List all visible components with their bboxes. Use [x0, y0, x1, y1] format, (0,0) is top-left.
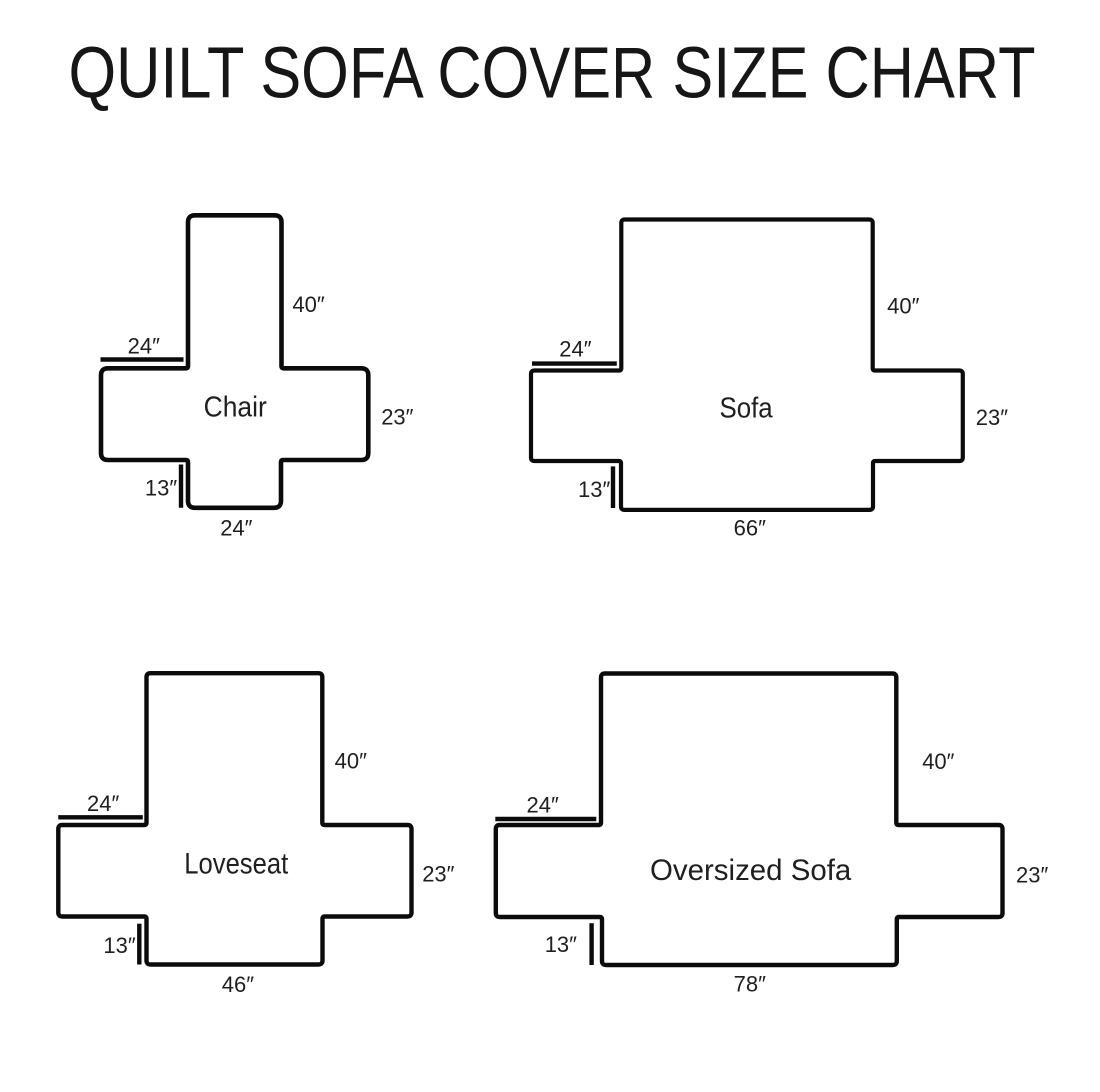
svg-text:Oversized Sofa: Oversized Sofa	[650, 854, 852, 887]
svg-text:40″: 40″	[335, 749, 367, 774]
svg-text:QUILT SOFA COVER SIZE CHART: QUILT SOFA COVER SIZE CHART	[69, 34, 1036, 114]
svg-text:78″: 78″	[734, 972, 766, 997]
svg-text:23″: 23″	[976, 405, 1008, 430]
svg-text:Loveseat: Loveseat	[184, 847, 288, 880]
svg-text:23″: 23″	[422, 862, 454, 887]
svg-text:66″: 66″	[734, 516, 766, 541]
svg-text:46″: 46″	[222, 972, 254, 997]
svg-text:23″: 23″	[381, 404, 413, 429]
svg-text:24″: 24″	[527, 793, 559, 818]
svg-text:24″: 24″	[87, 791, 119, 816]
svg-text:40″: 40″	[922, 749, 954, 774]
svg-text:24″: 24″	[128, 334, 160, 359]
svg-text:13″: 13″	[578, 477, 610, 502]
svg-text:13″: 13″	[103, 933, 135, 958]
svg-text:Chair: Chair	[204, 391, 268, 423]
svg-text:13″: 13″	[545, 932, 577, 957]
svg-text:24″: 24″	[559, 336, 591, 361]
svg-text:40″: 40″	[887, 294, 919, 319]
svg-text:13″: 13″	[145, 476, 177, 501]
svg-text:40″: 40″	[292, 292, 324, 317]
svg-text:Sofa: Sofa	[720, 393, 774, 425]
svg-text:24″: 24″	[220, 515, 252, 540]
svg-text:23″: 23″	[1016, 862, 1048, 887]
